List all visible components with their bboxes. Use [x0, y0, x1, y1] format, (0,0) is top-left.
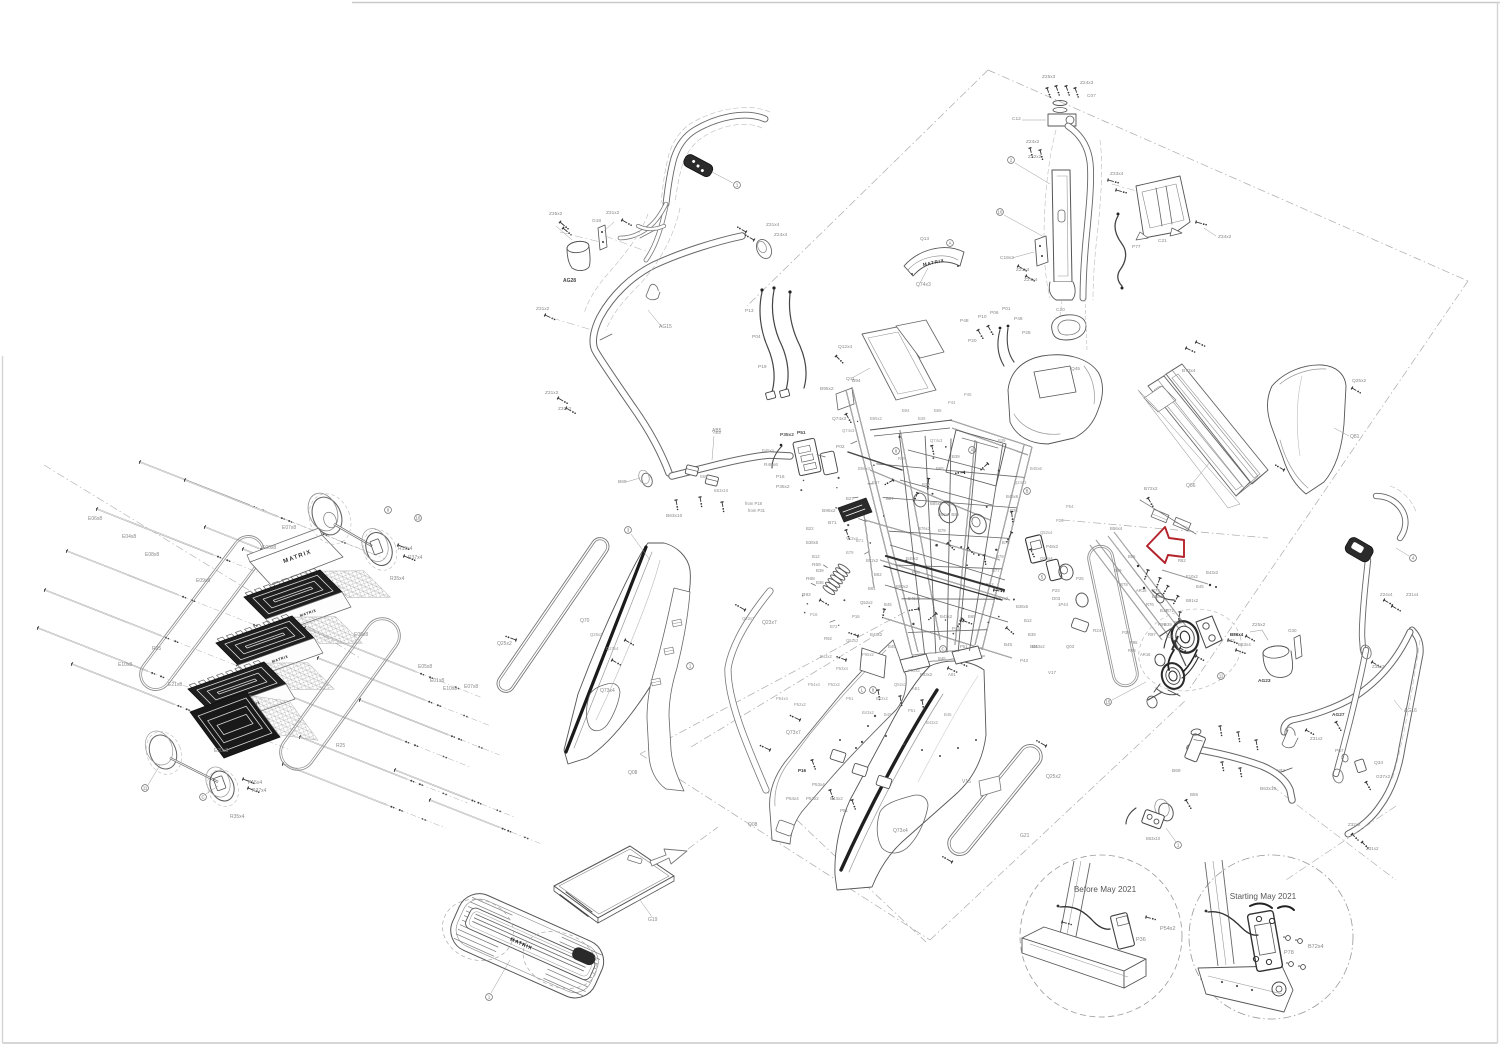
- svg-text:Q03: Q03: [1066, 644, 1075, 649]
- svg-text:C21: C21: [1158, 238, 1167, 244]
- svg-text:B45: B45: [1004, 642, 1013, 647]
- svg-text:P54x4: P54x4: [786, 796, 799, 801]
- svg-text:P54x4: P54x4: [776, 696, 789, 701]
- svg-text:AB5: AB5: [713, 430, 722, 435]
- svg-text:B65: B65: [968, 614, 976, 619]
- svg-text:R24: R24: [1093, 628, 1102, 633]
- svg-text:B45: B45: [938, 656, 946, 661]
- svg-text:B22: B22: [806, 526, 814, 531]
- svg-text:P10: P10: [978, 314, 987, 320]
- svg-text:10: 10: [998, 210, 1003, 215]
- svg-text:Z25x3: Z25x3: [1042, 74, 1056, 80]
- svg-text:P53x4: P53x4: [812, 782, 825, 787]
- svg-text:R92: R92: [824, 636, 832, 641]
- svg-text:Z33x4: Z33x4: [1110, 171, 1124, 177]
- svg-text:B63x10: B63x10: [1146, 836, 1161, 841]
- svg-text:B43x2: B43x2: [926, 720, 939, 725]
- svg-text:Q73x4: Q73x4: [893, 828, 908, 834]
- svg-text:P28: P28: [1022, 330, 1031, 336]
- svg-text:P16: P16: [798, 768, 807, 773]
- svg-text:Z24x3: Z24x3: [1080, 80, 1094, 86]
- svg-text:Z24x4: Z24x4: [1380, 592, 1393, 597]
- svg-text:AG27: AG27: [1332, 712, 1345, 718]
- svg-text:P53x4: P53x4: [836, 666, 849, 671]
- svg-text:E21x8: E21x8: [168, 682, 182, 688]
- svg-text:B91x2: B91x2: [1186, 598, 1199, 603]
- svg-text:Z31x2: Z31x2: [1310, 736, 1323, 741]
- svg-text:Z35x2: Z35x2: [549, 211, 563, 217]
- svg-text:P54x4: P54x4: [808, 682, 821, 687]
- svg-text:B27: B27: [846, 496, 854, 501]
- svg-text:C: C: [201, 795, 204, 800]
- svg-text:R92: R92: [802, 592, 811, 598]
- svg-text:Q73x4: Q73x4: [600, 688, 615, 694]
- svg-text:P16: P16: [852, 614, 860, 619]
- svg-text:P54: P54: [1066, 504, 1074, 509]
- svg-text:Z24x2: Z24x2: [1026, 139, 1040, 145]
- svg-text:R37x4: R37x4: [252, 788, 267, 794]
- svg-text:B87: B87: [886, 496, 894, 501]
- svg-text:B62: B62: [874, 572, 882, 577]
- svg-text:B94: B94: [902, 408, 910, 413]
- svg-text:Q22x7: Q22x7: [742, 616, 755, 621]
- svg-text:P48x2: P48x2: [1046, 544, 1059, 549]
- svg-text:Z22x2: Z22x2: [1028, 154, 1042, 160]
- svg-text:B45: B45: [884, 712, 892, 717]
- svg-text:Q12x4: Q12x4: [838, 344, 852, 350]
- svg-text:P51: P51: [846, 696, 854, 701]
- svg-text:P78: P78: [1284, 950, 1294, 956]
- svg-text:B38x5: B38x5: [1016, 604, 1029, 609]
- svg-text:11: 11: [143, 786, 148, 791]
- svg-text:Q52x2: Q52x2: [894, 682, 907, 687]
- svg-text:P25: P25: [1076, 576, 1084, 581]
- svg-text:B43x2: B43x2: [1206, 570, 1219, 575]
- svg-text:B39: B39: [1164, 622, 1172, 627]
- svg-text:B: B: [1026, 489, 1029, 494]
- svg-text:Q74x3: Q74x3: [930, 438, 943, 443]
- svg-text:R78: R78: [1120, 582, 1128, 587]
- svg-text:B45x2: B45x2: [908, 596, 921, 601]
- svg-text:Q52x4: Q52x4: [1040, 556, 1053, 561]
- svg-text:B63x10: B63x10: [1260, 786, 1277, 792]
- svg-text:Q34: Q34: [1374, 760, 1383, 766]
- svg-text:P52x2: P52x2: [794, 702, 807, 707]
- svg-text:R95: R95: [898, 456, 906, 461]
- svg-text:P02: P02: [836, 444, 845, 450]
- svg-text:AG15: AG15: [659, 324, 672, 330]
- svg-text:Q74x3: Q74x3: [842, 428, 855, 433]
- svg-text:E06x8: E06x8: [88, 516, 102, 522]
- svg-text:P43: P43: [1020, 658, 1029, 663]
- svg-text:R94: R94: [1128, 648, 1136, 653]
- svg-text:Q74x3: Q74x3: [916, 282, 931, 288]
- svg-text:B43x2: B43x2: [940, 614, 953, 619]
- svg-text:B65: B65: [936, 466, 944, 471]
- svg-text:P35x2: P35x2: [780, 432, 794, 438]
- svg-text:P51: P51: [908, 708, 916, 713]
- svg-text:Z31x2: Z31x2: [1372, 664, 1385, 669]
- svg-text:P43: P43: [952, 626, 960, 631]
- svg-text:E07x8: E07x8: [464, 684, 478, 690]
- svg-text:Q27x4: Q27x4: [606, 646, 619, 651]
- svg-text:G19: G19: [648, 917, 658, 923]
- svg-text:11: 11: [1219, 674, 1224, 679]
- svg-text:P95x2: P95x2: [908, 668, 921, 673]
- svg-text:R35x4: R35x4: [230, 814, 245, 820]
- svg-text:B43x2: B43x2: [862, 710, 875, 715]
- svg-text:Q25x2: Q25x2: [497, 641, 512, 647]
- svg-text:Q08: Q08: [628, 770, 638, 776]
- svg-text:B43x2: B43x2: [820, 654, 833, 659]
- svg-text:C: C: [941, 647, 944, 652]
- svg-text:V15: V15: [962, 779, 971, 785]
- svg-text:A: A: [971, 448, 974, 453]
- svg-text:B61: B61: [868, 586, 876, 591]
- svg-text:A01: A01: [948, 672, 956, 677]
- svg-text:P48: P48: [960, 318, 969, 324]
- svg-text:AR16: AR16: [1140, 652, 1151, 657]
- svg-text:from P31: from P31: [748, 508, 766, 513]
- svg-text:P16: P16: [776, 474, 785, 480]
- svg-text:R74: R74: [1152, 588, 1160, 593]
- svg-text:B12: B12: [812, 554, 820, 559]
- svg-text:R25: R25: [152, 646, 161, 652]
- svg-text:B90x2: B90x2: [896, 584, 909, 589]
- svg-text:B63x10: B63x10: [714, 488, 729, 493]
- svg-text:Q52x2: Q52x2: [846, 638, 859, 643]
- svg-text:B86x4: B86x4: [1230, 632, 1244, 637]
- svg-text:B45: B45: [888, 644, 896, 649]
- svg-text:R35x4: R35x4: [390, 576, 405, 582]
- svg-text:Q73x7: Q73x7: [786, 730, 801, 736]
- svg-text:B79: B79: [996, 554, 1004, 559]
- svg-text:B95x2: B95x2: [870, 416, 883, 421]
- svg-text:Q25x2: Q25x2: [1352, 378, 1366, 384]
- svg-text:Z21x4: Z21x4: [1016, 267, 1030, 273]
- svg-text:V17: V17: [1048, 670, 1057, 675]
- svg-text:B39: B39: [816, 568, 824, 573]
- svg-text:B71: B71: [856, 538, 864, 543]
- svg-text:B36: B36: [816, 580, 824, 585]
- svg-text:P52x2: P52x2: [806, 796, 819, 801]
- svg-text:B39: B39: [998, 438, 1006, 443]
- svg-text:C12: C12: [1012, 116, 1021, 122]
- svg-text:P35x2: P35x2: [776, 484, 790, 490]
- svg-text:P77: P77: [1132, 244, 1141, 250]
- svg-text:B45: B45: [884, 602, 892, 607]
- svg-text:R82: R82: [1178, 558, 1186, 563]
- svg-text:Z34x2: Z34x2: [1218, 234, 1232, 240]
- svg-text:R37x4: R37x4: [408, 555, 423, 561]
- svg-text:E09x8: E09x8: [196, 578, 210, 584]
- svg-text:B39: B39: [1028, 632, 1036, 637]
- svg-text:Q08: Q08: [748, 822, 758, 828]
- svg-text:D03: D03: [1052, 596, 1061, 601]
- svg-text:E05x8: E05x8: [418, 664, 432, 670]
- svg-text:1P44: 1P44: [1058, 602, 1069, 607]
- svg-text:P51: P51: [797, 430, 806, 436]
- svg-text:B43x2: B43x2: [920, 672, 933, 677]
- svg-text:P26: P26: [1010, 508, 1018, 513]
- svg-text:Z31x4: Z31x4: [766, 222, 780, 228]
- svg-text:Q45: Q45: [1071, 366, 1080, 372]
- svg-text:AR15: AR15: [1136, 588, 1147, 593]
- svg-text:P26: P26: [1056, 518, 1064, 523]
- svg-text:B56x4: B56x4: [858, 466, 871, 471]
- svg-text:Starting May 2021: Starting May 2021: [1230, 892, 1297, 901]
- svg-text:Z31x4: Z31x4: [1406, 592, 1419, 597]
- svg-text:B45: B45: [944, 712, 952, 717]
- svg-text:B45x6: B45x6: [1030, 466, 1043, 471]
- svg-text:G21: G21: [1020, 833, 1030, 839]
- svg-text:AG16: AG16: [1404, 708, 1417, 714]
- svg-text:B95x2: B95x2: [820, 386, 834, 392]
- svg-text:R76: R76: [1146, 602, 1154, 607]
- svg-text:B63x4: B63x4: [1238, 642, 1251, 647]
- svg-text:Q86: Q86: [1186, 483, 1196, 489]
- svg-text:B12: B12: [1024, 618, 1032, 623]
- svg-text:P35: P35: [1122, 630, 1130, 635]
- svg-text:Z24x4: Z24x4: [1024, 277, 1038, 283]
- svg-text:15: 15: [1106, 700, 1111, 705]
- svg-text:from P18: from P18: [745, 501, 763, 506]
- svg-text:B65: B65: [1190, 792, 1199, 797]
- svg-text:P51: P51: [960, 644, 968, 649]
- svg-text:R46x6: R46x6: [764, 462, 778, 468]
- svg-text:B65: B65: [934, 408, 942, 413]
- svg-text:G30: G30: [1288, 628, 1297, 633]
- svg-text:P20: P20: [968, 338, 977, 344]
- svg-text:Q13: Q13: [920, 236, 929, 242]
- svg-text:Z24x4: Z24x4: [774, 232, 788, 238]
- svg-text:B55: B55: [1128, 554, 1136, 559]
- svg-text:B79: B79: [938, 528, 946, 533]
- svg-text:B38x5: B38x5: [806, 540, 819, 545]
- svg-text:E04x8: E04x8: [122, 534, 136, 540]
- svg-text:E01x8: E01x8: [430, 678, 444, 684]
- svg-text:B69: B69: [1172, 768, 1181, 774]
- svg-text:B76x2: B76x2: [918, 526, 931, 531]
- svg-text:B45x6: B45x6: [1006, 494, 1019, 499]
- svg-text:P52x2: P52x2: [828, 682, 841, 687]
- svg-text:B95x2: B95x2: [822, 508, 836, 514]
- svg-text:Q52x2: Q52x2: [860, 600, 873, 605]
- svg-text:P16: P16: [810, 612, 818, 617]
- svg-text:Q81: Q81: [1350, 434, 1360, 440]
- svg-text:B63x10: B63x10: [666, 513, 683, 519]
- svg-text:Q25x2: Q25x2: [1046, 774, 1061, 780]
- svg-text:B72x2: B72x2: [866, 558, 879, 563]
- svg-text:P48: P48: [1014, 316, 1023, 322]
- svg-text:B45: B45: [1196, 584, 1204, 589]
- svg-text:B72: B72: [830, 624, 838, 629]
- svg-text:Z31x2: Z31x2: [545, 390, 559, 396]
- svg-text:Z25x2: Z25x2: [1252, 622, 1266, 628]
- svg-text:P23: P23: [1052, 588, 1060, 593]
- svg-text:B36: B36: [1030, 644, 1038, 649]
- svg-text:R15x4: R15x4: [398, 546, 413, 552]
- svg-text:Q25x2: Q25x2: [590, 632, 603, 637]
- svg-text:E20x8: E20x8: [214, 748, 228, 754]
- svg-text:E06x8: E06x8: [354, 632, 368, 638]
- svg-text:B77: B77: [992, 568, 1000, 573]
- svg-text:P54x2: P54x2: [1160, 926, 1176, 932]
- svg-text:B55x5 B86: B55x5 B86: [938, 512, 960, 517]
- svg-text:AB1: AB1: [912, 686, 921, 691]
- svg-text:B94: B94: [852, 378, 861, 384]
- svg-text:Z32x2: Z32x2: [558, 406, 572, 412]
- svg-text:P06: P06: [990, 310, 999, 316]
- svg-text:P36: P36: [1136, 937, 1146, 943]
- svg-text:B72x2: B72x2: [1144, 486, 1158, 492]
- svg-text:P67: P67: [1335, 748, 1344, 754]
- svg-text:P15x4: P15x4: [248, 780, 262, 786]
- svg-text:R68: R68: [806, 576, 815, 582]
- svg-text:B39: B39: [952, 454, 960, 459]
- svg-text:B72x2: B72x2: [876, 696, 889, 701]
- svg-text:Z31x2: Z31x2: [606, 210, 620, 216]
- svg-text:P51: P51: [840, 808, 849, 813]
- svg-text:B87: B87: [872, 480, 880, 485]
- svg-text:B12: B12: [1160, 608, 1168, 613]
- svg-text:B45x4: B45x4: [762, 448, 775, 453]
- svg-text:G18: G18: [592, 218, 601, 224]
- svg-text:B69: B69: [618, 479, 627, 485]
- svg-text:10: 10: [416, 516, 421, 521]
- svg-text:P04: P04: [752, 334, 761, 340]
- svg-text:B79: B79: [846, 550, 854, 555]
- svg-text:Q23x7: Q23x7: [762, 620, 777, 626]
- svg-text:Z32x2: Z32x2: [1348, 822, 1361, 827]
- svg-text:E07x8: E07x8: [282, 525, 296, 531]
- svg-text:B36: B36: [1166, 634, 1174, 639]
- svg-text:B43x2: B43x2: [830, 796, 843, 801]
- svg-text:B69: B69: [700, 474, 708, 479]
- svg-text:Z31x2: Z31x2: [536, 306, 550, 312]
- svg-text:E08x8: E08x8: [145, 552, 159, 558]
- svg-text:C07: C07: [1087, 93, 1096, 99]
- svg-text:B72x4: B72x4: [1308, 944, 1324, 950]
- svg-text:G37x2: G37x2: [1376, 774, 1390, 780]
- svg-text:R25: R25: [336, 743, 345, 749]
- svg-text:B85x5: B85x5: [930, 501, 943, 506]
- svg-text:Q52x4: Q52x4: [1040, 530, 1053, 535]
- svg-text:E89: E89: [1114, 568, 1122, 573]
- svg-text:B39: B39: [918, 416, 926, 421]
- svg-text:B73x4: B73x4: [1182, 368, 1196, 374]
- svg-text:E10x8: E10x8: [118, 662, 132, 668]
- svg-text:A: A: [949, 241, 952, 246]
- svg-text:P95x2: P95x2: [862, 652, 875, 657]
- svg-text:B22: B22: [1227, 638, 1235, 643]
- svg-text:P95: P95: [1130, 640, 1138, 645]
- svg-text:P01: P01: [1002, 306, 1011, 312]
- svg-text:B71: B71: [828, 520, 837, 526]
- svg-text:Before May 2021: Before May 2021: [1074, 885, 1137, 894]
- svg-text:Q74x3: Q74x3: [832, 416, 846, 422]
- svg-text:B45x2: B45x2: [906, 556, 919, 561]
- svg-text:P44: P44: [948, 400, 956, 405]
- svg-text:P13: P13: [745, 308, 754, 314]
- svg-text:E10x8: E10x8: [443, 686, 457, 692]
- svg-text:B38x5: B38x5: [1152, 594, 1165, 599]
- svg-text:B56x4: B56x4: [1110, 526, 1123, 531]
- svg-text:P19: P19: [758, 364, 767, 370]
- svg-text:Q70: Q70: [580, 618, 590, 624]
- svg-text:B39: B39: [922, 482, 930, 487]
- svg-text:B43x2: B43x2: [870, 632, 883, 637]
- svg-text:AG23: AG23: [1258, 678, 1271, 684]
- svg-text:B71: B71: [1002, 540, 1010, 545]
- svg-text:P45: P45: [964, 392, 972, 397]
- svg-text:R97: R97: [1148, 632, 1156, 637]
- svg-text:Q24x3: Q24x3: [1014, 480, 1027, 485]
- svg-text:AG28: AG28: [563, 278, 576, 284]
- svg-text:E06x8: E06x8: [262, 545, 276, 551]
